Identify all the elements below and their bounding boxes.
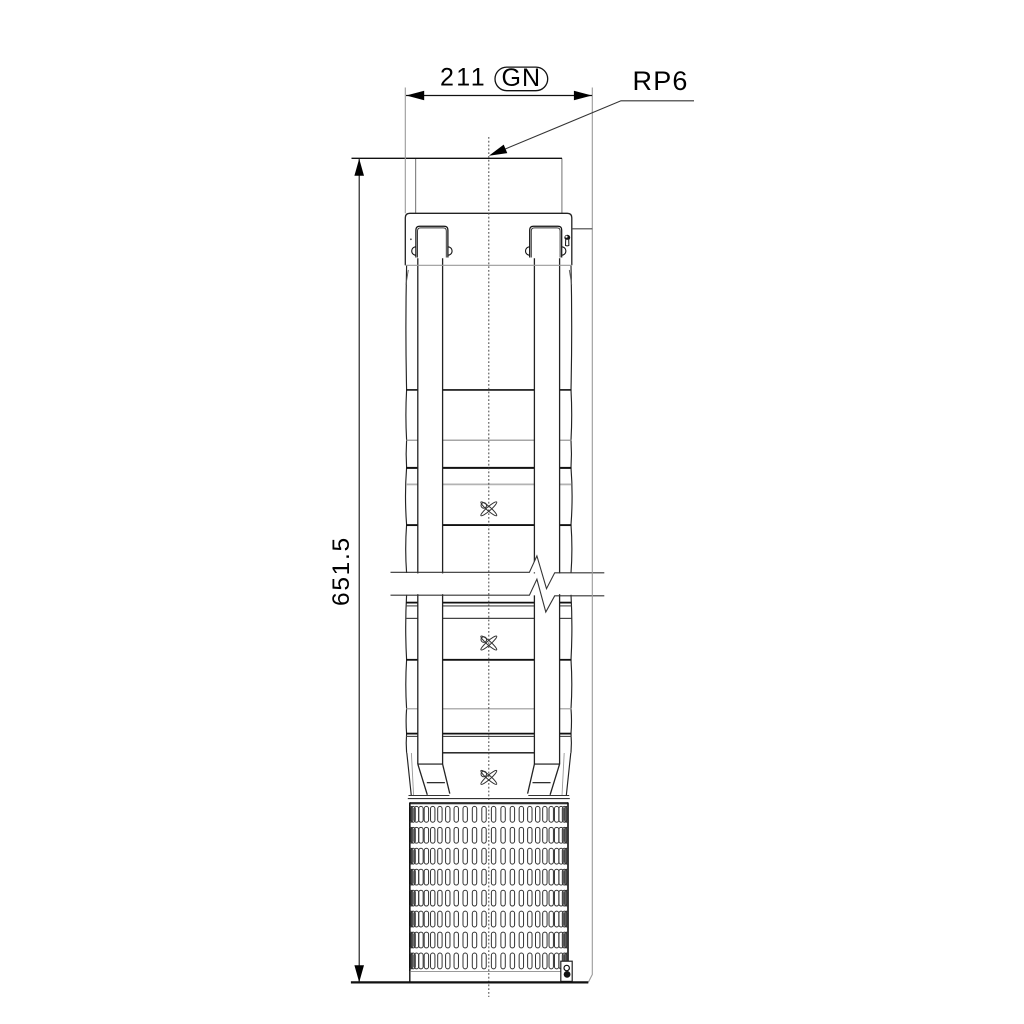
svg-text:651.5: 651.5 [328, 536, 355, 606]
svg-text:211: 211 [440, 63, 487, 91]
svg-text:RP6: RP6 [633, 66, 689, 96]
svg-text:GN: GN [502, 64, 542, 92]
